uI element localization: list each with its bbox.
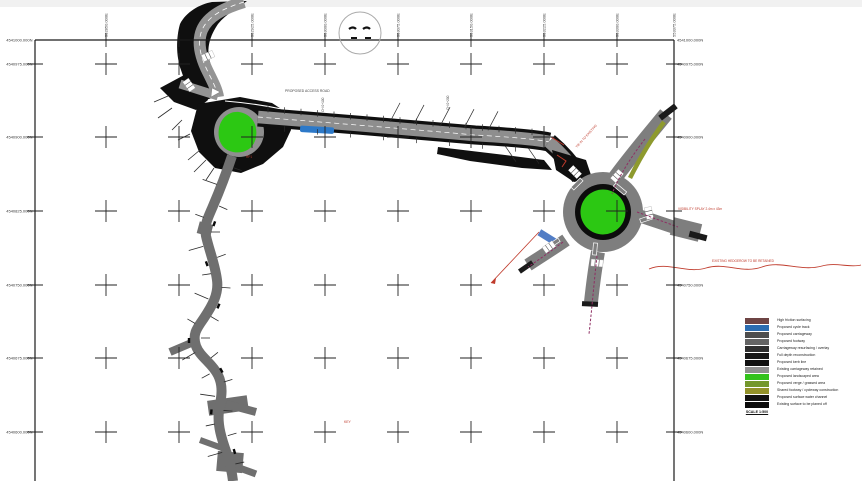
key-note: KEY (344, 420, 352, 424)
legend-label: Proposed kerb line (777, 360, 806, 364)
legend-item: Proposed surface water channel (745, 395, 855, 401)
svg-text:4541000.000N: 4541000.000N (677, 37, 703, 42)
legend-swatch (745, 346, 769, 352)
svg-text:4540675.000N: 4540675.000N (6, 355, 32, 360)
legend-swatch (745, 402, 769, 408)
legend-rows: High friction surfacing Proposed cycle t… (745, 318, 855, 408)
legend-item: Full depth reconstruction (745, 353, 855, 359)
roundabout (183, 50, 708, 334)
legend-swatch (745, 388, 769, 394)
central-island-green (581, 190, 626, 235)
visibility-note: VISIBILITY SPLAY 2.4m x 43m (678, 207, 722, 211)
legend-swatch (745, 325, 769, 331)
svg-text:4540750.000N: 4540750.000N (677, 282, 703, 287)
legend-label: Proposed cycle track (777, 325, 810, 329)
legend-item: Proposed landscaped area (745, 374, 855, 380)
svg-text:4540975.000N: 4540975.000N (677, 61, 703, 66)
legend-item: Shared footway / cycleway construction (745, 388, 855, 394)
junction-note: RP1 (246, 155, 252, 159)
chainage-label-1: CH 0+100 (321, 97, 325, 112)
svg-text:553150.000E: 553150.000E (469, 13, 474, 37)
legend-item: Carriageway resurfacing / overlay (745, 346, 855, 352)
legend-item: Existing carriageway retained (745, 367, 855, 373)
legend-swatch (745, 381, 769, 387)
green-island (219, 112, 257, 153)
svg-text:552925.000E: 552925.000E (250, 13, 255, 37)
legend-swatch (745, 339, 769, 345)
legend: High friction surfacing Proposed cycle t… (745, 318, 855, 414)
svg-text:4540600.000N: 4540600.000N (677, 429, 703, 434)
legend-item: Proposed kerb line (745, 360, 855, 366)
legend-item: Proposed verge / grassed area (745, 381, 855, 387)
legend-item: Proposed cycle track (745, 325, 855, 331)
svg-text:553000.000E: 553000.000E (323, 13, 328, 37)
chainage-label-2: CH 0+200 (446, 95, 450, 110)
hedgerow-leader-line (649, 265, 861, 270)
legend-label: Proposed surface water channel (777, 395, 827, 399)
site-plan-canvas: PROPOSED ACCESS ROAD CH 0+100 CH 0+200 T… (0, 0, 862, 481)
svg-text:4540975.000N: 4540975.000N (6, 61, 32, 66)
red-annotations (491, 137, 861, 284)
legend-item: High friction surfacing (745, 318, 855, 324)
svg-text:4540675.000N: 4540675.000N (677, 355, 703, 360)
site-plan-page: PROPOSED ACCESS ROAD CH 0+100 CH 0+200 T… (0, 0, 862, 481)
legend-label: Proposed footway (777, 339, 805, 343)
main-road (258, 117, 592, 182)
legend-swatch (745, 353, 769, 359)
legend-swatch (745, 367, 769, 373)
legend-label: Carriageway resurfacing / overlay (777, 346, 829, 350)
svg-text:552850.000E: 552850.000E (104, 13, 109, 37)
svg-text:4540825.000N: 4540825.000N (6, 208, 32, 213)
drawing-border (35, 40, 674, 481)
legend-label: Full depth reconstruction (777, 353, 815, 357)
svg-text:4540600.000N: 4540600.000N (6, 429, 32, 434)
legend-label: Proposed landscaped area (777, 374, 819, 378)
legend-item: Existing surface to be planed off (745, 402, 855, 408)
legend-item: Proposed footway (745, 339, 855, 345)
svg-text:4541000.000N: 4541000.000N (6, 37, 32, 42)
legend-swatch (745, 395, 769, 401)
svg-text:553075.000E: 553075.000E (396, 13, 401, 37)
legend-scale-label: SCALE 1:500 (745, 410, 769, 414)
svg-text:4540900.000N: 4540900.000N (6, 134, 32, 139)
legend-label: Existing carriageway retained (777, 367, 823, 371)
road-label: PROPOSED ACCESS ROAD (285, 89, 330, 93)
svg-text:553225.000E: 553225.000E (542, 13, 547, 37)
legend-label: Proposed verge / grassed area (777, 381, 825, 385)
legend-swatch (745, 332, 769, 338)
legend-swatch (745, 318, 769, 324)
svg-text:4540900.000N: 4540900.000N (677, 134, 703, 139)
legend-swatch (745, 360, 769, 366)
legend-label: Proposed carriageway (777, 332, 812, 336)
svg-text:553300.000E: 553300.000E (615, 13, 620, 37)
legend-item: Proposed carriageway (745, 332, 855, 338)
legend-swatch (745, 374, 769, 380)
hedgerow-note: EXISTING HEDGEROW TO BE RETAINED (712, 259, 775, 263)
legend-label: Shared footway / cycleway construction (777, 388, 838, 392)
svg-text:4540750.000N: 4540750.000N (6, 282, 32, 287)
tie-in-note: TIE IN TO EXISTING (575, 123, 598, 148)
svg-text:553375.000E: 553375.000E (672, 13, 677, 37)
legend-label: High friction surfacing (777, 318, 811, 322)
legend-label: Existing surface to be planed off (777, 402, 827, 406)
north-symbol (339, 12, 381, 54)
